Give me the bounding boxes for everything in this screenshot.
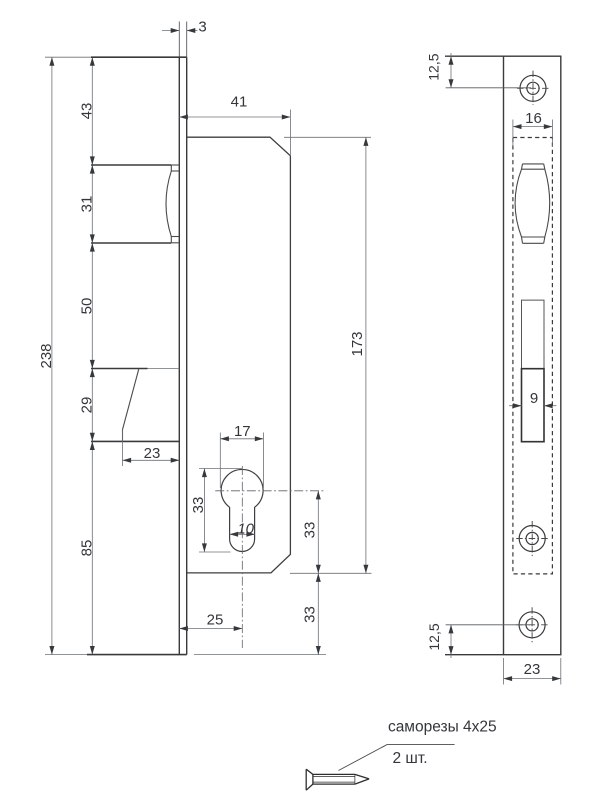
svg-text:3: 3 bbox=[198, 19, 206, 36]
svg-text:10: 10 bbox=[237, 521, 254, 538]
svg-text:29: 29 bbox=[79, 397, 96, 414]
svg-text:16: 16 bbox=[525, 110, 542, 127]
svg-text:2 шт.: 2 шт. bbox=[392, 750, 427, 767]
svg-text:85: 85 bbox=[79, 540, 96, 557]
svg-text:50: 50 bbox=[79, 298, 96, 315]
svg-text:23: 23 bbox=[524, 661, 541, 678]
svg-text:12,5: 12,5 bbox=[426, 53, 442, 80]
svg-text:9: 9 bbox=[530, 390, 538, 407]
svg-text:33: 33 bbox=[190, 497, 207, 514]
svg-text:33: 33 bbox=[302, 606, 319, 623]
svg-text:23: 23 bbox=[144, 445, 161, 462]
svg-text:саморезы 4x25: саморезы 4x25 bbox=[388, 719, 497, 736]
svg-text:31: 31 bbox=[79, 196, 96, 213]
svg-text:41: 41 bbox=[231, 94, 248, 111]
svg-text:43: 43 bbox=[79, 103, 96, 120]
svg-text:25: 25 bbox=[207, 612, 224, 629]
svg-text:33: 33 bbox=[302, 522, 319, 539]
svg-text:17: 17 bbox=[234, 423, 251, 440]
svg-text:12,5: 12,5 bbox=[426, 623, 442, 650]
svg-text:238: 238 bbox=[38, 343, 55, 368]
svg-text:173: 173 bbox=[349, 331, 366, 356]
